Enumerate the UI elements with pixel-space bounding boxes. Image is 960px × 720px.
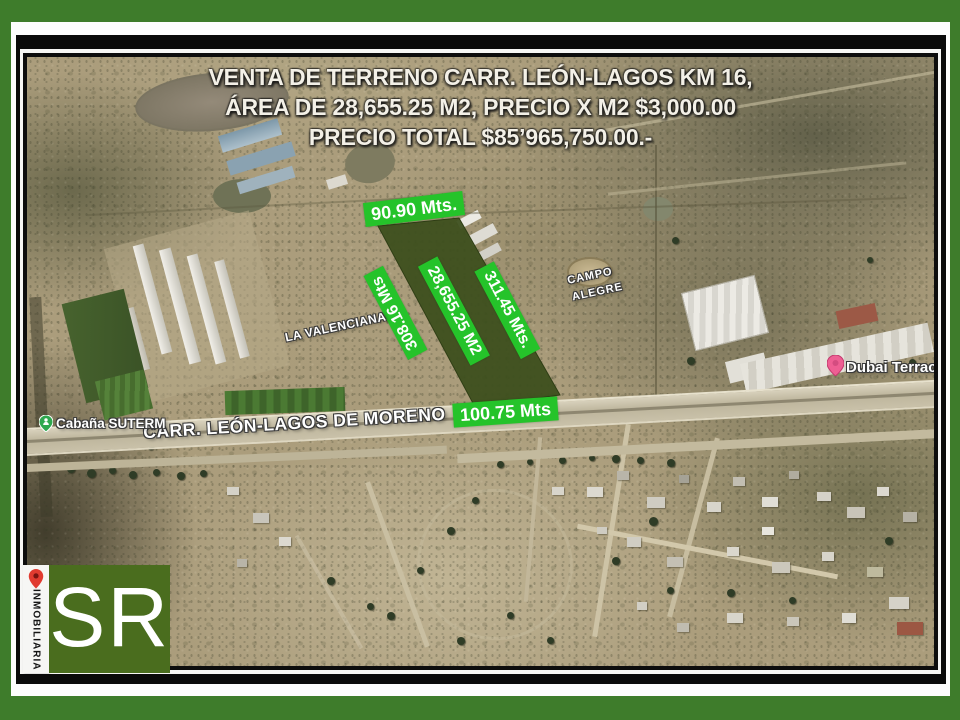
cabana-suterm-label: Cabaña SUTERM <box>39 415 166 432</box>
logo-strip: INMOBILIARIA <box>23 565 49 673</box>
logo-initials: SR <box>49 575 170 659</box>
agency-logo: INMOBILIARIA SR <box>23 565 170 673</box>
poster-title: VENTA DE TERRENO CARR. LEÓN-LAGOS KM 16,… <box>27 62 934 152</box>
title-line-1: VENTA DE TERRENO CARR. LEÓN-LAGOS KM 16, <box>27 62 934 92</box>
real-estate-poster: 90.90 Mts. 308.16 Mts 28,655.25 M2 311.4… <box>0 0 960 720</box>
dubai-terrac-text: Dubai Terrac <box>846 359 934 376</box>
logo-initials-box: SR <box>49 565 170 673</box>
title-line-2: ÁREA DE 28,655.25 M2, PRECIO X M2 $3,000… <box>27 92 934 122</box>
dubai-terrac-label: Dubai Terrac <box>827 355 934 376</box>
title-line-3: PRECIO TOTAL $85’965,750.00.- <box>27 122 934 152</box>
dubai-pin-icon <box>827 355 844 376</box>
cabana-pin-icon <box>39 415 53 432</box>
logo-pin-icon <box>26 569 46 589</box>
logo-vertical-text: INMOBILIARIA <box>31 589 42 673</box>
cabana-suterm-text: Cabaña SUTERM <box>56 416 166 431</box>
